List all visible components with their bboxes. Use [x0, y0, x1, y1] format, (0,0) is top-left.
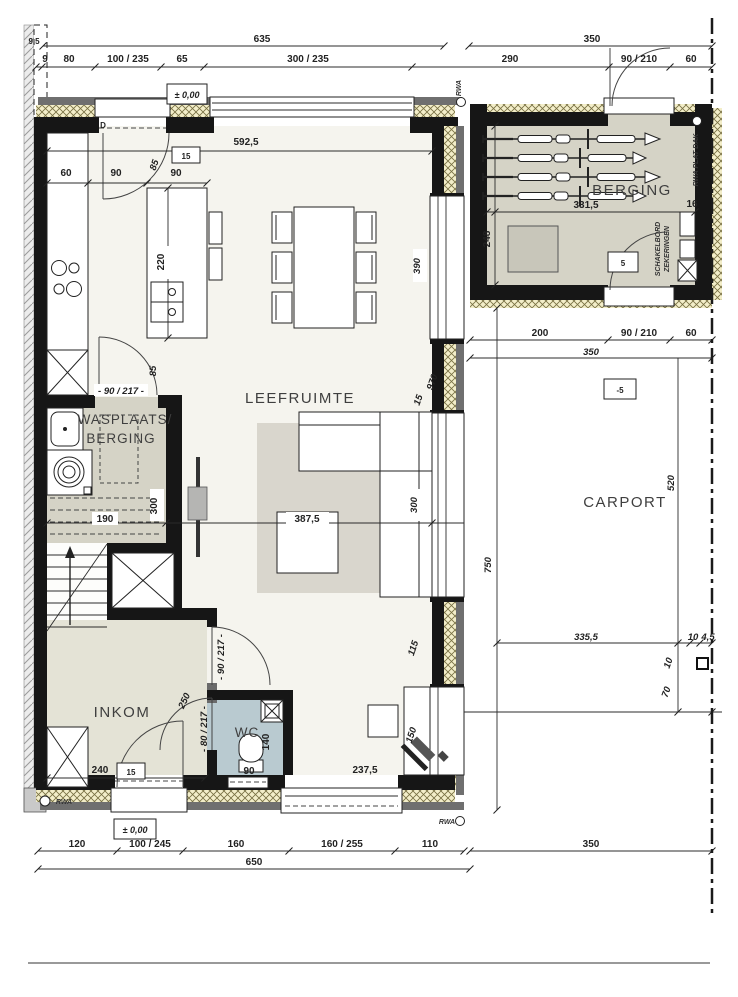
dim-750: 750 [483, 556, 494, 573]
rwa-bottom-left: RWA [56, 799, 72, 806]
door-letter: D [100, 121, 106, 130]
storage-box [508, 226, 558, 272]
dim-248: 248 [482, 230, 493, 247]
dim-90-wc: 90 [243, 766, 255, 777]
living-window-sill [281, 788, 402, 813]
dim-220: 220 [156, 253, 167, 270]
dim-240: 240 [92, 765, 109, 776]
dim-16: 16 [686, 199, 698, 210]
dim-90a: 90 [110, 168, 122, 179]
dim-65: 65 [176, 54, 188, 65]
dim-90b: 90 [170, 168, 182, 179]
berging-bottom-door [604, 287, 674, 306]
dim-237: 237,5 [352, 765, 377, 776]
dim-90-210-top: 90 / 210 [621, 54, 658, 65]
dim-60-kitchen: 60 [60, 168, 72, 179]
level-top: ± 0,00 [175, 90, 200, 100]
dim-520: 520 [666, 474, 677, 491]
dim-110: 110 [422, 839, 439, 850]
dim-300-235: 300 / 235 [287, 54, 329, 65]
dining-furniture [272, 207, 376, 328]
dim-120: 120 [69, 839, 86, 850]
dim-350-carport: 350 [583, 347, 600, 358]
dim-corner: 9,5 [28, 37, 40, 46]
dim-70: 70 [660, 685, 674, 699]
window-150 [430, 687, 464, 775]
stool [209, 248, 222, 280]
room-wc: WC [235, 725, 260, 740]
dim-650: 650 [246, 857, 263, 868]
dim-350-bottom: 350 [583, 839, 600, 850]
dim-290: 290 [502, 54, 519, 65]
dim-door-90-217: - 90 / 217 - [216, 634, 227, 680]
rwa-top: RWA [456, 80, 463, 96]
room-wasplaats-1: WASPLAATS/ [78, 412, 173, 427]
window-300 [430, 413, 464, 597]
tv [188, 487, 207, 520]
dim-100-245: 100 / 245 [129, 839, 171, 850]
rwa-icon [456, 817, 465, 826]
dim-300-wasplaats: 300 [149, 497, 160, 514]
floor-plan-page: 635 350 9,5 9 80 100 / 235 65 300 / 235 … [0, 0, 738, 997]
room-carport: CARPORT [583, 494, 667, 511]
rwa-icon [457, 98, 466, 107]
dim-331: 331,5 [573, 200, 598, 211]
schakelbord: SCHAKELBORD [655, 222, 662, 276]
dim-90-210-carport: 90 / 210 [621, 328, 658, 339]
dim-350-top: 350 [584, 34, 601, 45]
window-390 [430, 196, 464, 339]
wc-window [228, 777, 268, 788]
dim-door-wasplaats: - 90 / 217 - [98, 386, 144, 397]
room-inkom: INKOM [94, 704, 151, 721]
dim-80: 80 [63, 54, 75, 65]
dim-200: 200 [532, 328, 549, 339]
dim-592: 592,5 [233, 137, 258, 148]
dim-85-wasplaats: 85 [148, 365, 159, 376]
berging-top-door [604, 98, 674, 114]
carport-lines [464, 308, 722, 810]
dim-300-window: 300 [409, 496, 420, 513]
dim-390: 390 [412, 257, 423, 274]
step5-berging: 5 [621, 259, 626, 268]
room-wasplaats-2: BERGING [86, 431, 155, 446]
kitchen-counter [47, 133, 88, 350]
dim-387: 387,5 [294, 514, 319, 525]
front-top-door-sill [95, 99, 170, 117]
dim-335: 335,5 [574, 632, 598, 643]
zekeringen: ZEKERINGEN [664, 225, 671, 273]
party-wall [24, 25, 47, 812]
dim-60-carport: 60 [685, 328, 697, 339]
dim-635: 635 [254, 34, 271, 45]
dim-45: 4,5 [700, 632, 715, 643]
dim-10b: 10 [662, 656, 676, 670]
front-door-sill [111, 788, 187, 812]
room-leefruimte: LEEFRUIMTE [245, 390, 355, 407]
dim-100-235: 100 / 235 [107, 54, 149, 65]
rwa-icon [40, 796, 50, 806]
level-bottom: ± 0,00 [123, 825, 148, 835]
stool [209, 212, 222, 244]
dim-door-80-217: - 80 / 217 - [199, 706, 210, 752]
electrical-panel [678, 212, 697, 281]
dim-9: 9 [42, 54, 48, 65]
sofa-chaise [380, 412, 432, 597]
dim-140: 140 [261, 733, 272, 750]
kitchen-window [210, 97, 414, 117]
step15-kitchen: 15 [182, 152, 191, 161]
dim-10a: 10 [688, 632, 699, 643]
level-carport: -5 [616, 386, 624, 395]
side-table [368, 705, 398, 737]
dim-60-top: 60 [685, 54, 697, 65]
dim-160-255: 160 / 255 [321, 839, 363, 850]
floor-plan-drawing: 635 350 9,5 9 80 100 / 235 65 300 / 235 … [0, 0, 738, 997]
carport-post [697, 658, 708, 669]
dim-160: 160 [228, 839, 245, 850]
rwa-plat-dak: RWA PLAT DAK [693, 133, 700, 187]
dining-table [294, 207, 354, 328]
step15-inkom: 15 [127, 768, 136, 777]
rwa-bottom-mid: RWA [439, 819, 455, 826]
room-berging: BERGING [592, 182, 672, 199]
dim-190: 190 [97, 514, 114, 525]
rwa-icon [693, 117, 702, 126]
